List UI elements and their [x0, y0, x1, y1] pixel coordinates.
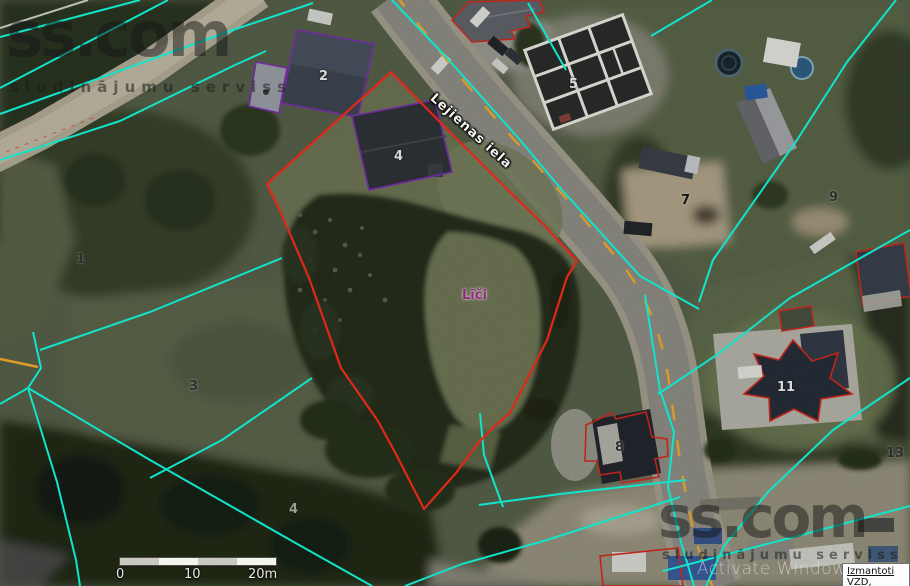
scale-tick-20: 20m: [248, 567, 277, 582]
brand-watermark-bottom: ss.com: [658, 488, 866, 546]
place-label: Līči: [462, 289, 487, 302]
parcel-label-9: 9: [829, 191, 838, 204]
map-viewport[interactable]: 1 2 3 4 5 7 8 9 11 13 4 Līči Lejienas ie…: [0, 0, 910, 586]
scale-tick-0: 0: [116, 567, 124, 582]
parcel-label-5: 5: [569, 78, 578, 91]
attribution-link[interactable]: Izmantoti VZD,: [842, 563, 910, 586]
parcel-label-4: 4: [394, 150, 403, 163]
brand-tagline-top: sludinājumu serviss: [10, 80, 292, 95]
activate-windows-watermark: Activate Windows: [697, 558, 856, 580]
parcel-label-7: 7: [681, 194, 690, 207]
parcel-label-4b: 4: [289, 503, 298, 516]
parcel-label-13: 13: [886, 447, 904, 460]
scale-bar: 0 10 20m: [116, 555, 280, 581]
parcel-label-3: 3: [189, 380, 198, 393]
brand-watermark-top: ss.com: [6, 4, 229, 66]
attribution-label: Izmantoti VZD,: [847, 566, 894, 586]
parcel-label-8: 8: [615, 441, 624, 454]
scale-tick-10: 10: [184, 567, 201, 582]
parcel-label-2: 2: [319, 70, 328, 83]
parcel-label-1: 1: [76, 253, 85, 266]
scale-bar-segments: [120, 558, 276, 565]
parcel-label-11: 11: [777, 381, 795, 394]
